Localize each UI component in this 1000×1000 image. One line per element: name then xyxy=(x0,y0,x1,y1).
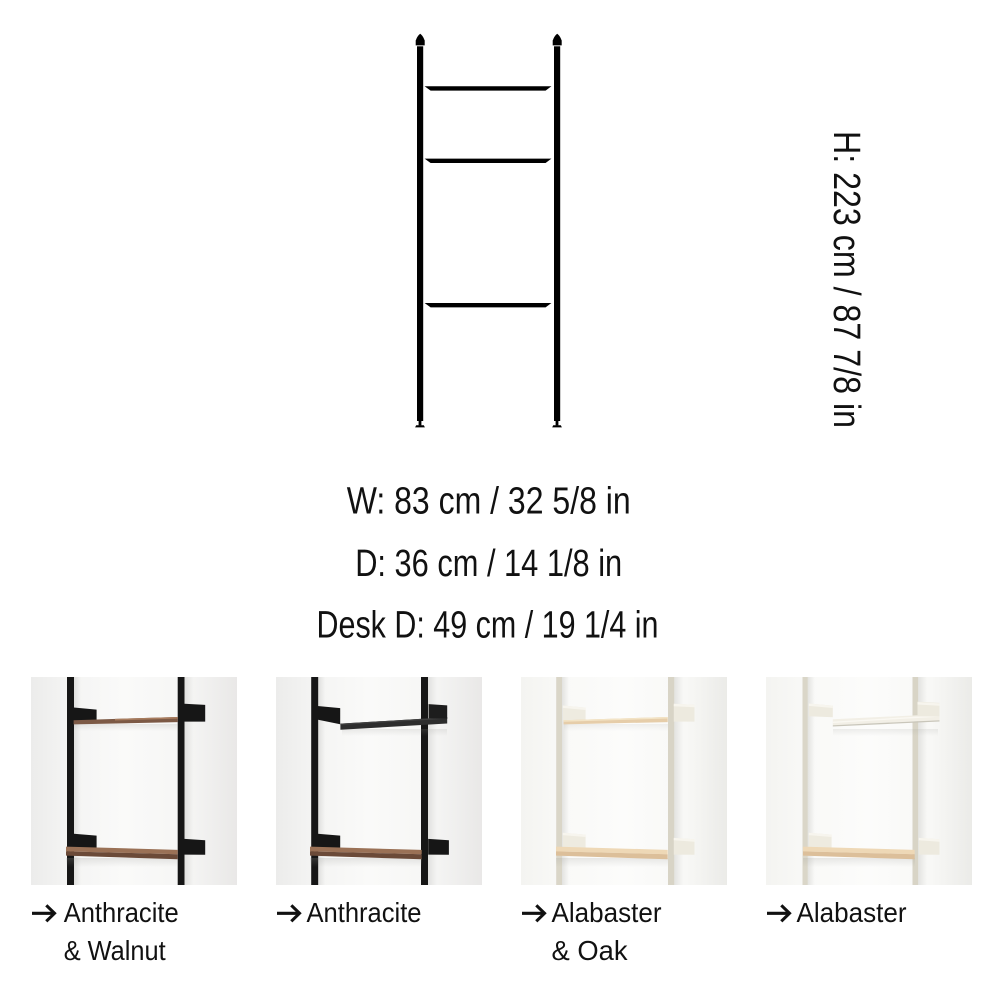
svg-text:& Walnut: & Walnut xyxy=(64,935,166,966)
svg-text:Alabaster: Alabaster xyxy=(797,897,907,928)
svg-text:Alabaster: Alabaster xyxy=(552,897,662,928)
svg-text:Anthracite: Anthracite xyxy=(64,897,179,928)
svg-text:& Oak: & Oak xyxy=(552,935,629,966)
svg-text:Anthracite: Anthracite xyxy=(307,897,422,928)
svg-text:D: 36 cm / 14 1/8 in: D: 36 cm / 14 1/8 in xyxy=(355,543,622,585)
svg-text:Desk D: 49 cm / 19 1/4 in: Desk D: 49 cm / 19 1/4 in xyxy=(317,605,659,647)
svg-text:H: 223 cm / 87 7/8 in: H: 223 cm / 87 7/8 in xyxy=(825,131,867,428)
svg-text:W: 83 cm / 32 5/8 in: W: 83 cm / 32 5/8 in xyxy=(347,481,631,523)
